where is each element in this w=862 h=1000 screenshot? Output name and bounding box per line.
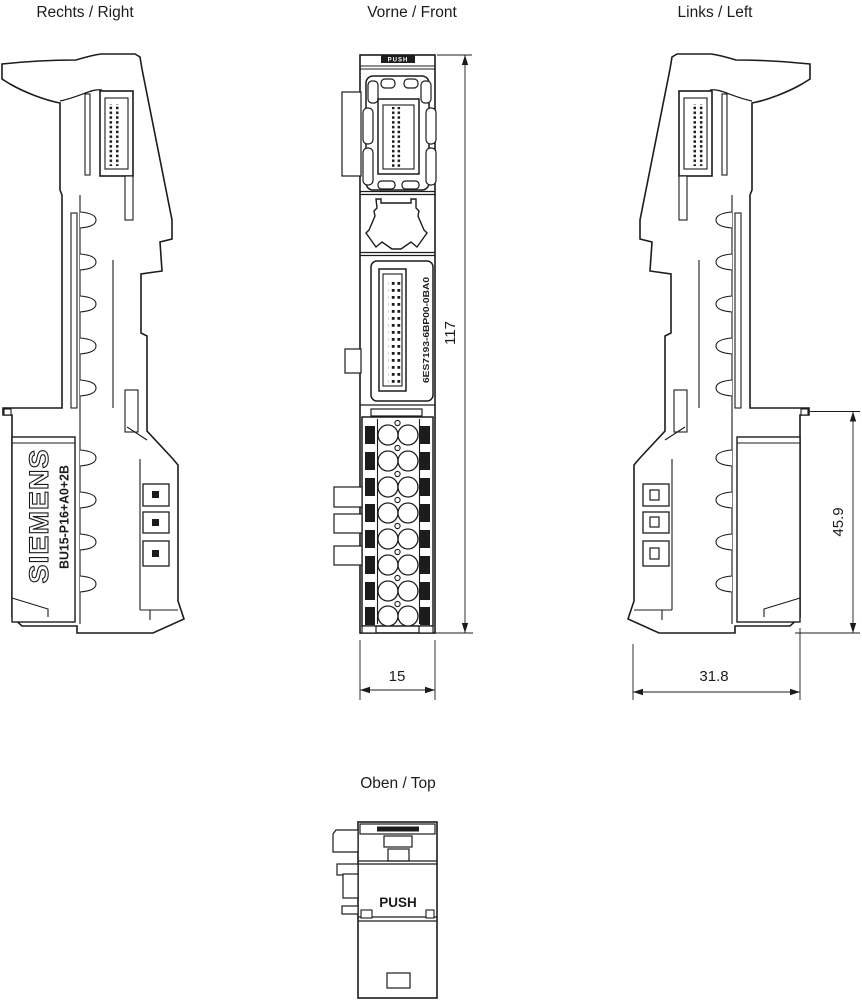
front-terminal-section bbox=[334, 405, 473, 633]
dim-height-text: 117 bbox=[442, 321, 459, 345]
front-left-tabs bbox=[334, 487, 362, 565]
arrow-right-icon bbox=[790, 689, 800, 695]
arrow-left-icon bbox=[633, 689, 643, 695]
view-label-front: Vorne / Front bbox=[367, 4, 457, 21]
view-label-top: Oben / Top bbox=[360, 775, 436, 792]
front-top-connector-section bbox=[363, 76, 436, 190]
right-view: SIEMENS BU15-P16+A0+2B bbox=[2, 54, 184, 633]
front-main-connector-pins bbox=[388, 278, 401, 384]
arrow-up-icon bbox=[462, 55, 468, 65]
dim-depth-text: 31.8 bbox=[699, 668, 728, 685]
left-view bbox=[628, 54, 810, 633]
left-view-terminal-windows bbox=[650, 490, 659, 559]
brand-text: SIEMENS bbox=[24, 449, 54, 584]
top-view: PUSH bbox=[333, 822, 437, 998]
front-main-connector-section: 6ES7193-6BP00-0BA0 bbox=[345, 261, 433, 401]
arrow-down-icon bbox=[462, 623, 468, 633]
arrow-right-icon bbox=[425, 687, 435, 693]
front-side-tab bbox=[345, 349, 361, 373]
dimension-rear-height-45-9: 45.9 bbox=[795, 412, 860, 634]
model-text: BU15-P16+A0+2B bbox=[57, 465, 71, 569]
drawing-page: Rechts / Right Vorne / Front Links / Lef… bbox=[0, 0, 862, 1000]
top-left-lug bbox=[333, 830, 358, 852]
front-rail-hook bbox=[342, 92, 361, 176]
top-bottom-window bbox=[387, 973, 410, 988]
dim-rear-height-text: 45.9 bbox=[830, 507, 847, 536]
view-label-right: Rechts / Right bbox=[36, 4, 134, 21]
dimension-depth-31-8: 31.8 bbox=[633, 628, 800, 700]
front-top-connector-pins bbox=[389, 107, 401, 169]
technical-drawing: Rechts / Right Vorne / Front Links / Lef… bbox=[0, 0, 862, 1000]
arrow-up-icon bbox=[850, 412, 856, 422]
part-number-text: 6ES7193-6BP00-0BA0 bbox=[422, 276, 431, 383]
top-push-text: PUSH bbox=[379, 895, 417, 910]
view-label-left: Links / Left bbox=[678, 4, 754, 21]
arrow-left-icon bbox=[360, 687, 370, 693]
front-push-text: PUSH bbox=[388, 58, 409, 64]
dimension-width-15: 15 bbox=[360, 640, 435, 700]
dimension-height-117: 117 bbox=[437, 55, 472, 633]
dim-width-text: 15 bbox=[389, 668, 406, 685]
arrow-down-icon bbox=[850, 623, 856, 633]
